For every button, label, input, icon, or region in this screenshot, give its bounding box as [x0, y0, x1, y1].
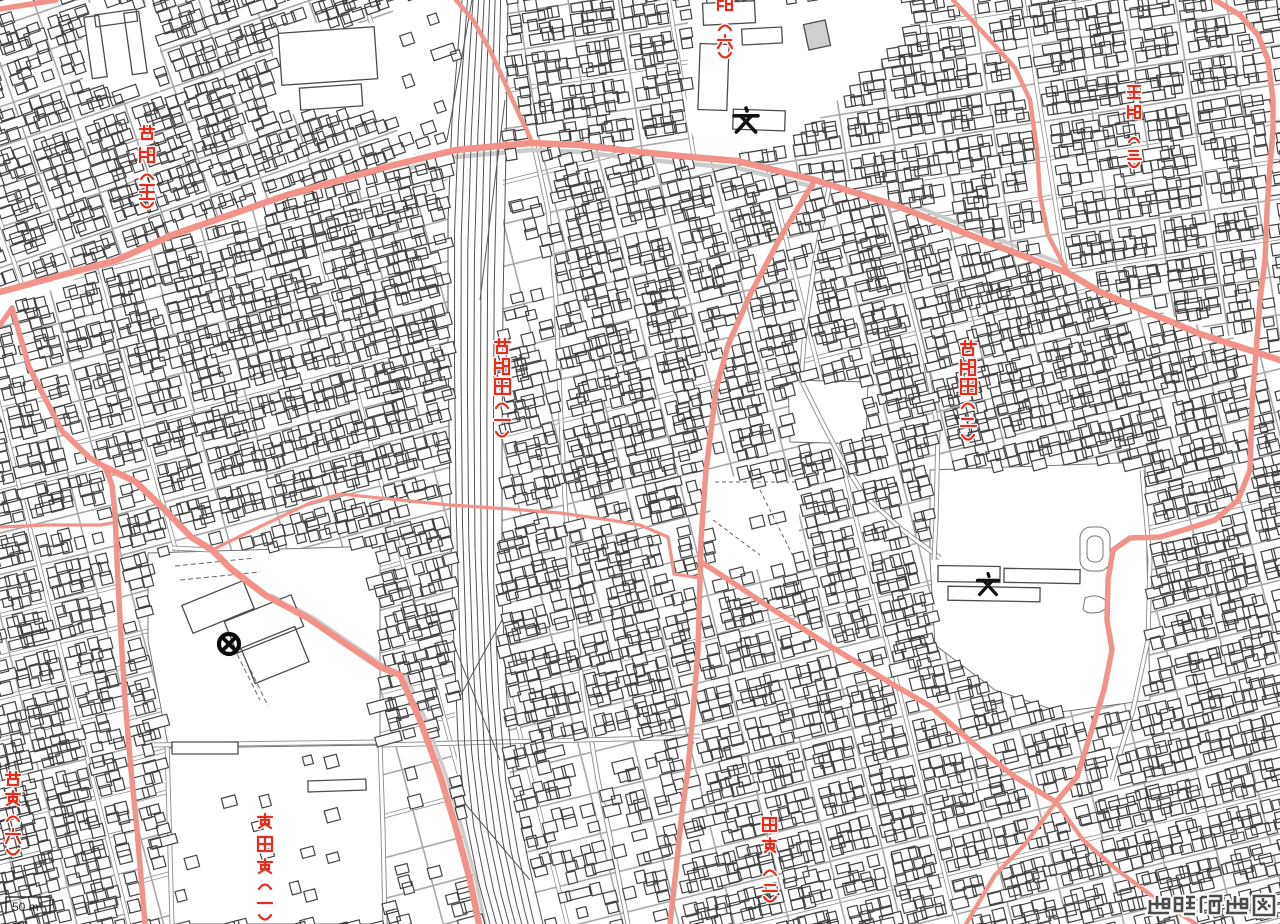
svg-text:50 m: 50 m	[12, 900, 39, 914]
